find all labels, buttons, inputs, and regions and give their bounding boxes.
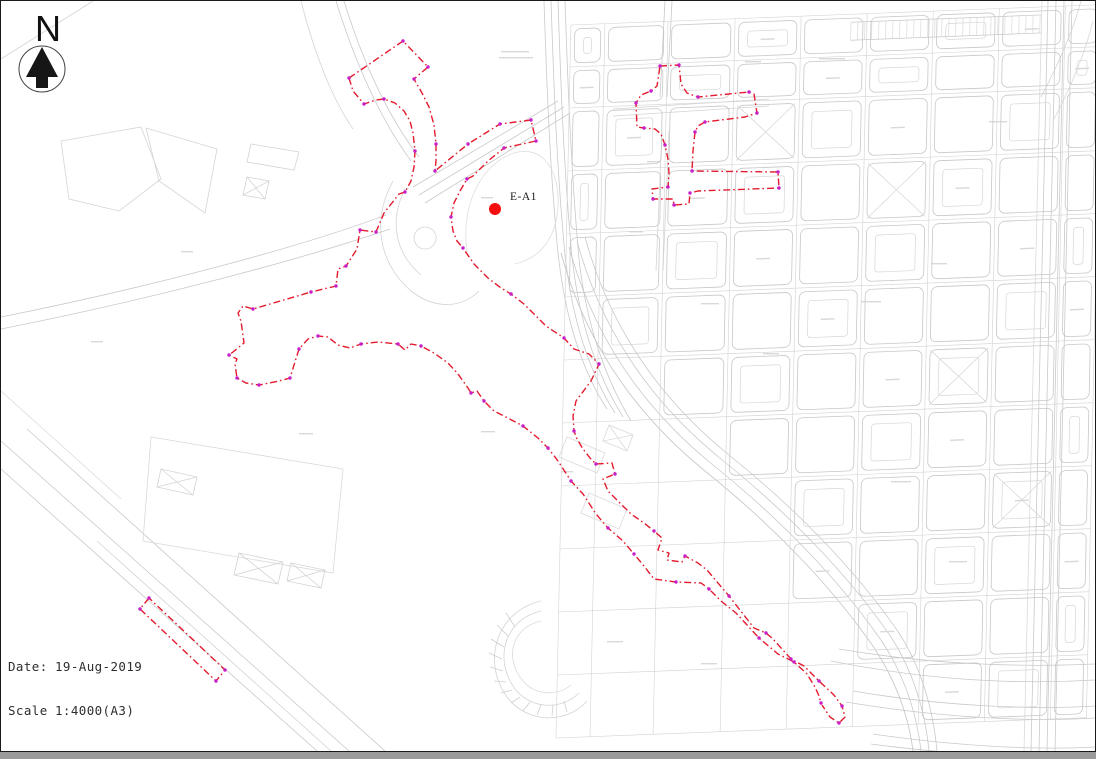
boundary-vertex-node (688, 191, 691, 194)
tiny-annotation-mark (756, 258, 770, 260)
city-block (733, 229, 792, 286)
city-block (934, 96, 993, 153)
tiny-annotation-mark (891, 481, 911, 482)
boundary-vertex-node (569, 479, 572, 482)
tiny-annotation-mark (607, 641, 623, 642)
boundary-vertex-node (572, 429, 575, 432)
tiny-annotation-mark (880, 631, 894, 633)
boundary-vertex-node (426, 65, 429, 68)
street-line (786, 16, 801, 729)
boundary-vertex-node (658, 64, 661, 67)
north-arrow-pointer (26, 47, 58, 88)
building-outline (740, 365, 781, 404)
boundary-vertex-node (651, 197, 654, 200)
street-line (556, 718, 1086, 738)
city-block (870, 57, 929, 92)
city-block (794, 479, 853, 536)
street-line (653, 21, 668, 734)
road-line (1, 229, 390, 329)
city-block (603, 234, 659, 291)
boundary-vertex-node (789, 657, 792, 660)
city-block (1000, 93, 1059, 150)
boundary-vertex-node (677, 63, 680, 66)
tiny-annotation-mark (1065, 561, 1079, 563)
boundary-vertex-node (521, 424, 524, 427)
city-block (1056, 596, 1085, 652)
city-block (864, 287, 923, 344)
boundary-vertex-node (764, 631, 767, 634)
building-outline (583, 37, 591, 53)
boundary-vertex-node (227, 353, 230, 356)
city-block (994, 408, 1053, 465)
boundary-vertex-node (466, 142, 469, 145)
north-arrow: N (11, 7, 81, 99)
tiny-annotation-mark (949, 561, 967, 562)
tiny-annotation-mark (627, 137, 641, 139)
building-outline (611, 307, 649, 345)
boundary-vertex-node (597, 362, 600, 365)
road-line (425, 113, 570, 203)
building-outline (803, 488, 844, 527)
city-block (1060, 407, 1089, 463)
boundary-vertex-node (529, 118, 532, 121)
tiny-annotation-mark (819, 58, 845, 59)
boundary-vertex-node (214, 679, 217, 682)
boundary-vertex-node (434, 142, 437, 145)
city-block (1064, 218, 1093, 274)
drawing-sheet: E-A1 N Date:19-Aug-2019 Scale1:4000(A3) (0, 0, 1096, 752)
road-line (585, 237, 937, 751)
boundary-vertex-node (347, 76, 350, 79)
building-outline (676, 241, 718, 280)
boundary-vertex-node (672, 203, 675, 206)
city-block (796, 416, 855, 473)
boundary-vertex-node (382, 97, 385, 100)
city-block (990, 597, 1049, 654)
boundary-vertex-node (649, 89, 652, 92)
tiny-annotation-mark (945, 691, 959, 693)
tiny-annotation-mark (481, 431, 495, 432)
tiny-annotation-mark (499, 57, 533, 58)
boundary-vertex-node (433, 169, 436, 172)
road-line (381, 181, 479, 305)
boundary-vertex-node (403, 190, 406, 193)
city-block (666, 232, 726, 289)
building-outline (1069, 416, 1080, 453)
road-line (301, 1, 353, 129)
tiny-annotation-mark (1020, 248, 1034, 250)
city-block (932, 222, 991, 279)
street-line (561, 466, 1091, 486)
road-line (559, 437, 605, 473)
street-line (567, 214, 1095, 234)
boundary-vertex-node (755, 111, 758, 114)
boundary-vertex-node (374, 230, 377, 233)
city-block (1069, 9, 1095, 44)
city-block (729, 418, 788, 475)
boundary-vertex-node (683, 554, 686, 557)
building-outline (811, 110, 852, 149)
city-block (995, 345, 1054, 402)
tiny-annotation-mark (861, 301, 881, 302)
boundary-vertex-node (707, 587, 710, 590)
city-block (669, 106, 729, 163)
street-line (571, 5, 1095, 25)
tiny-annotation-mark (885, 379, 899, 381)
tiny-annotation-mark (691, 197, 705, 199)
road-line (414, 227, 436, 249)
x-mark (736, 103, 795, 160)
boundary-vertex-node (316, 334, 319, 337)
road-line (336, 1, 411, 161)
boundary-vertex-node (666, 185, 669, 188)
boundary-vertex-node (693, 130, 696, 133)
boundary-vertex-node (309, 290, 312, 293)
road-line (569, 247, 921, 751)
boundary-vertex-node (509, 292, 512, 295)
street-line (560, 529, 1090, 549)
boundary-vertex-node (792, 660, 795, 663)
boundary-vertex-node (690, 169, 693, 172)
city-block (936, 55, 995, 90)
boundary-vertex-node (817, 679, 820, 682)
title-block-text: Date:19-Aug-2019 Scale1:4000(A3) (8, 631, 142, 747)
building-outline (1006, 292, 1047, 331)
road-line (396, 189, 421, 275)
boundary-vertex-node (257, 383, 260, 386)
date-label: Date: (8, 660, 55, 675)
road-line (494, 601, 587, 718)
city-block (988, 660, 1047, 717)
boundary-vertex-node (334, 284, 337, 287)
boundary-vertex-node (469, 391, 472, 394)
building-outline (875, 234, 916, 273)
boundary-vertex-node (461, 246, 464, 249)
street-line (984, 9, 999, 722)
boundary-vertex-node (534, 139, 537, 142)
boundary-vertex-node (288, 376, 291, 379)
scale-label: Scale (8, 704, 55, 719)
road-line (61, 127, 161, 211)
city-block (801, 164, 860, 221)
city-block (999, 156, 1058, 213)
boundary-vertex-node (412, 77, 415, 80)
boundary-vertex-node (727, 594, 730, 597)
city-block (862, 413, 921, 470)
road-line (577, 241, 929, 751)
tiny-annotation-mark (91, 341, 103, 342)
boundary-vertex-node (613, 472, 616, 475)
survey-boundary-line (140, 598, 225, 681)
road-line (466, 151, 558, 264)
city-block (859, 539, 918, 596)
boundary-vertex-node (344, 264, 347, 267)
x-mark (929, 348, 988, 405)
site-marker-dot (489, 203, 501, 215)
road-line (344, 1, 419, 157)
tiny-annotation-mark (745, 61, 761, 62)
boundary-vertex-node (413, 149, 416, 152)
boundary-vertex-node (642, 126, 645, 129)
boundary-vertex-node (502, 146, 505, 149)
city-block (866, 224, 925, 281)
boundary-vertex-node (401, 39, 404, 42)
city-block (607, 67, 663, 102)
road-line (561, 253, 913, 751)
city-block (799, 227, 858, 284)
street-line (559, 592, 1089, 612)
building-outline (946, 22, 986, 40)
date-line: Date:19-Aug-2019 (8, 660, 142, 675)
boundary-vertex-node (482, 399, 485, 402)
road-line (143, 437, 343, 573)
city-block (572, 111, 599, 167)
boundary-vertex-node (251, 307, 254, 310)
boundary-vertex-node (419, 344, 422, 347)
street-line (565, 277, 1095, 297)
building-outline (879, 67, 919, 84)
building-outline (580, 183, 589, 220)
city-block (1058, 470, 1087, 526)
city-block (926, 474, 985, 531)
road-line (247, 144, 299, 170)
tiny-annotation-mark (763, 353, 779, 354)
street-line (720, 19, 735, 732)
boundary-vertex-node (546, 446, 549, 449)
city-block (991, 534, 1050, 591)
boundary-vertex-node (147, 596, 150, 599)
tiny-annotation-mark (580, 87, 594, 89)
boundary-vertex-node (757, 636, 760, 639)
building-outline (1073, 227, 1084, 264)
city-block (671, 23, 731, 59)
road-line (853, 691, 1095, 707)
boundary-vertex-node (776, 170, 779, 173)
road-line (513, 621, 571, 693)
street-line (1086, 5, 1095, 718)
boundary-vertex-node (777, 186, 780, 189)
boundary-vertex-node (703, 120, 706, 123)
city-block (1068, 51, 1095, 85)
street-line (590, 24, 605, 737)
boundary-vertex-node (634, 101, 637, 104)
boundary-vertex-node (663, 143, 666, 146)
road-line (243, 177, 269, 199)
tiny-annotation-mark (815, 570, 829, 572)
tiny-annotation-mark (826, 77, 840, 79)
building-outline (934, 546, 975, 585)
road-line (287, 563, 325, 588)
survey-boundary-line (349, 41, 845, 723)
boundary-vertex-node (235, 376, 238, 379)
street-line (564, 340, 1094, 360)
survey-boundary-line (636, 65, 779, 205)
road-line (603, 425, 633, 451)
street-line (563, 403, 1093, 423)
city-block (924, 600, 983, 657)
city-block (735, 166, 794, 223)
boundary-vertex-node (138, 607, 141, 610)
tiny-annotation-mark (950, 439, 964, 441)
building-outline (680, 74, 721, 91)
boundary-vertex-node (652, 529, 655, 532)
boundary-vertex-node (297, 347, 300, 350)
street-line (852, 14, 867, 727)
tiny-annotation-mark (701, 663, 717, 664)
boundary-vertex-node (674, 580, 677, 583)
city-block (804, 18, 863, 54)
street-line (918, 11, 933, 724)
date-value: 19-Aug-2019 (55, 659, 142, 674)
city-block (860, 476, 919, 533)
north-arrow-letter: N (35, 8, 61, 49)
boundary-vertex-node (837, 721, 840, 724)
tiny-annotation-mark (891, 127, 905, 129)
road-line (157, 469, 197, 495)
road-line (871, 744, 1095, 751)
road-line (1, 215, 386, 317)
boundary-vertex-node (358, 228, 361, 231)
road-line (146, 128, 217, 213)
city-block (930, 285, 989, 342)
tiny-annotation-mark (501, 51, 529, 52)
boundary-vertex-node (465, 177, 468, 180)
road-line (1, 391, 121, 499)
survey-boundary-layer (138, 39, 845, 724)
city-block (732, 292, 791, 349)
tiny-annotation-mark (761, 38, 775, 40)
street-line (569, 88, 1095, 108)
tiny-annotation-mark (181, 251, 193, 252)
street-line (570, 47, 1095, 67)
boundary-vertex-node (840, 704, 843, 707)
boundary-vertex-node (223, 668, 226, 671)
boundary-vertex-node (498, 122, 501, 125)
city-block (664, 358, 724, 415)
boundary-vertex-node (696, 95, 699, 98)
site-marker-label: E-A1 (510, 191, 537, 203)
city-block (797, 353, 856, 410)
x-mark (867, 161, 926, 218)
building-outline (1009, 103, 1050, 142)
boundary-vertex-node (359, 342, 362, 345)
boundary-vertex-node (449, 215, 452, 218)
boundary-vertex-node (632, 552, 635, 555)
site-plan-map: E-A1 (1, 1, 1095, 751)
tiny-annotation-mark (989, 121, 1007, 122)
city-block (802, 101, 861, 158)
boundary-vertex-node (396, 342, 399, 345)
hatched-band-edge (851, 15, 1041, 22)
tiny-annotation-mark (481, 197, 493, 198)
city-block (608, 25, 664, 61)
tiny-annotation-mark (299, 433, 313, 434)
boundary-vertex-node (606, 526, 609, 529)
city-block (1002, 52, 1061, 87)
city-block (574, 28, 601, 63)
city-block (731, 355, 790, 412)
boundary-vertex-node (362, 102, 365, 105)
city-block (925, 537, 984, 594)
boundary-vertex-node (747, 90, 750, 93)
city-block (996, 282, 1055, 339)
road-line (419, 107, 564, 195)
street-line (568, 151, 1095, 171)
tiny-annotation-mark (821, 318, 835, 320)
tiny-annotation-mark (701, 303, 719, 304)
boundary-vertex-node (562, 336, 565, 339)
tiny-annotation-mark (1025, 28, 1039, 30)
road-line (873, 734, 1095, 748)
boundary-vertex-node (819, 701, 822, 704)
road-line (504, 611, 579, 705)
boundary-vertex-node (594, 462, 597, 465)
x-mark (992, 471, 1051, 528)
base-map-linework (1, 1, 1095, 751)
city-block (569, 237, 596, 293)
tiny-annotation-mark (955, 187, 969, 189)
building-outline (1065, 605, 1076, 642)
city-block (1066, 92, 1095, 148)
scale-line: Scale1:4000(A3) (8, 704, 142, 719)
tiny-annotation-mark (931, 263, 947, 264)
tiny-annotation-mark (1070, 309, 1084, 311)
tiny-annotation-mark (561, 471, 573, 472)
city-block (1065, 155, 1094, 211)
building-outline (871, 423, 912, 462)
city-block (1061, 344, 1090, 400)
scale-value: 1:4000(A3) (55, 703, 134, 718)
